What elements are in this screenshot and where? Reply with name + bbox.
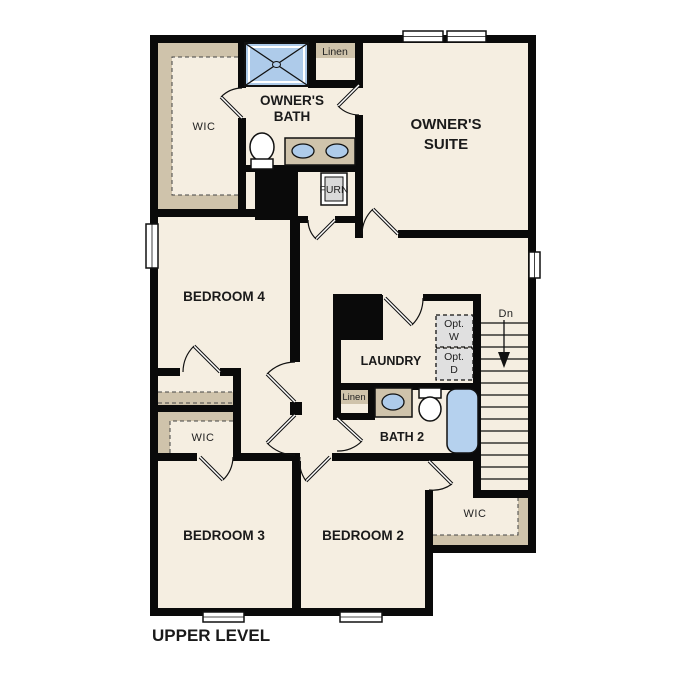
linen-bath2-label: Linen xyxy=(342,392,365,403)
owners-bath-label-line1: OWNER'S xyxy=(260,93,324,108)
optional-dryer-label-line1: Opt. xyxy=(444,351,464,363)
owners-suite-label-line1: OWNER'S xyxy=(410,116,481,133)
optional-washer-label-line2: W xyxy=(449,331,459,343)
bathtub-icon xyxy=(447,389,478,453)
toilet-owners-bath-icon xyxy=(250,133,274,169)
linen-top-label: Linen xyxy=(322,46,348,58)
bath2-sink-counter-icon xyxy=(375,388,412,417)
window-hall-right xyxy=(529,252,540,278)
window-suite-top-1 xyxy=(403,31,443,42)
laundry-label: LAUNDRY xyxy=(361,354,422,368)
optional-washer-label-line1: Opt. xyxy=(444,318,464,330)
bath2-label: BATH 2 xyxy=(380,430,424,444)
stairs-down-label: Dn xyxy=(498,308,513,320)
floor-plan: WIC OWNER'S BATH Linen OWNER'S SUITE FUR… xyxy=(0,0,687,687)
furnace-label: FURN xyxy=(319,184,348,196)
window-suite-top-2 xyxy=(447,31,486,42)
bedroom2-wic-label: WIC xyxy=(464,508,487,520)
vanity-double-sink-icon xyxy=(285,138,355,165)
shower-icon xyxy=(245,43,308,86)
window-bedroom2-bottom xyxy=(340,612,382,622)
bedroom4-label: BEDROOM 4 xyxy=(183,289,265,304)
window-bedroom4-left xyxy=(146,224,158,268)
bedroom2-label: BEDROOM 2 xyxy=(322,528,404,543)
window-bedroom3-bottom xyxy=(203,612,244,622)
toilet-bath2-icon xyxy=(419,388,441,421)
plan-title: UPPER LEVEL xyxy=(152,626,270,645)
owners-suite-label-line2: SUITE xyxy=(424,136,468,153)
owners-wic-label: WIC xyxy=(193,121,216,133)
floor-plan-page: WIC OWNER'S BATH Linen OWNER'S SUITE FUR… xyxy=(0,0,687,687)
bedroom3-wic-label: WIC xyxy=(192,432,215,444)
bedroom3-label: BEDROOM 3 xyxy=(183,528,265,543)
owners-bath-label-line2: BATH xyxy=(274,109,311,124)
optional-dryer-label-line2: D xyxy=(450,364,458,376)
